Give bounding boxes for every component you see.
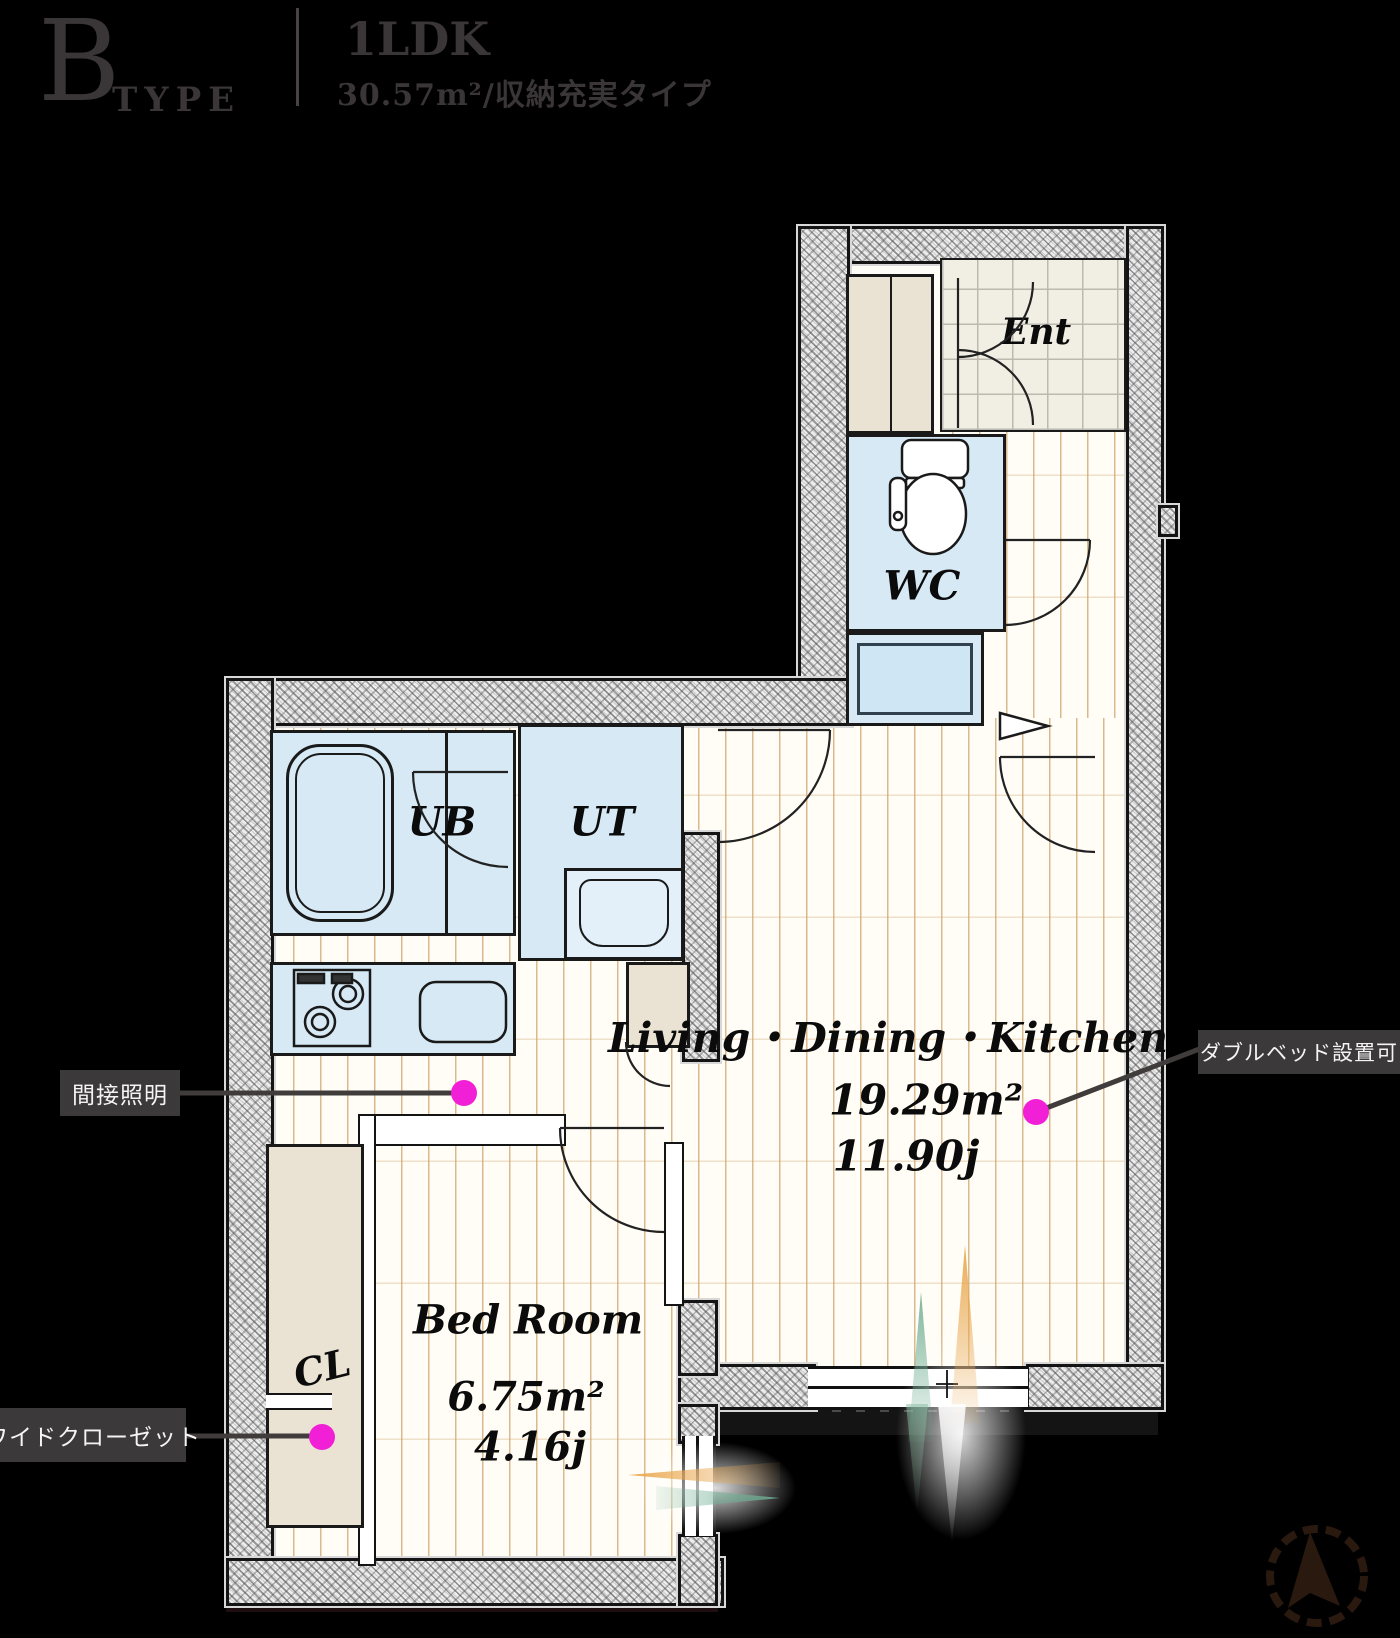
callout-wide-closet: ワイドクローゼット xyxy=(0,1408,186,1462)
leader-double-bed xyxy=(1036,1048,1202,1112)
floorplan-page: B TYPE 1LDK 30.57m²/収納充実タイプ xyxy=(0,0,1400,1638)
door-arcs xyxy=(413,278,1095,1232)
callout-dots xyxy=(309,1080,1049,1450)
dot-wide-closet xyxy=(309,1424,335,1450)
dot-indirect-lighting xyxy=(451,1080,477,1106)
callout-double-bed: ダブルベッド設置可 xyxy=(1198,1030,1400,1074)
step-marker-icon xyxy=(1000,713,1048,739)
north-compass-icon xyxy=(1270,1529,1364,1623)
bedroom-door-arc xyxy=(560,1128,664,1232)
corridor-ldk-door-arc xyxy=(718,730,830,842)
callout-lines xyxy=(178,1048,1202,1436)
entry-door-arc-top xyxy=(958,282,1033,357)
wc-door-arc xyxy=(1005,540,1090,625)
toilet-icon xyxy=(890,440,968,554)
dot-double-bed xyxy=(1023,1099,1049,1125)
plan-overlay xyxy=(0,0,1400,1638)
cabinet-door-arc xyxy=(626,1042,670,1086)
callout-indirect-lighting: 間接照明 xyxy=(60,1070,180,1116)
stove-icon xyxy=(294,970,370,1046)
sink-icon xyxy=(420,982,506,1042)
hall-ldk-door-arc xyxy=(1000,757,1095,852)
entry-door-arc-bottom xyxy=(958,350,1033,425)
ub-door-arc xyxy=(413,772,508,867)
